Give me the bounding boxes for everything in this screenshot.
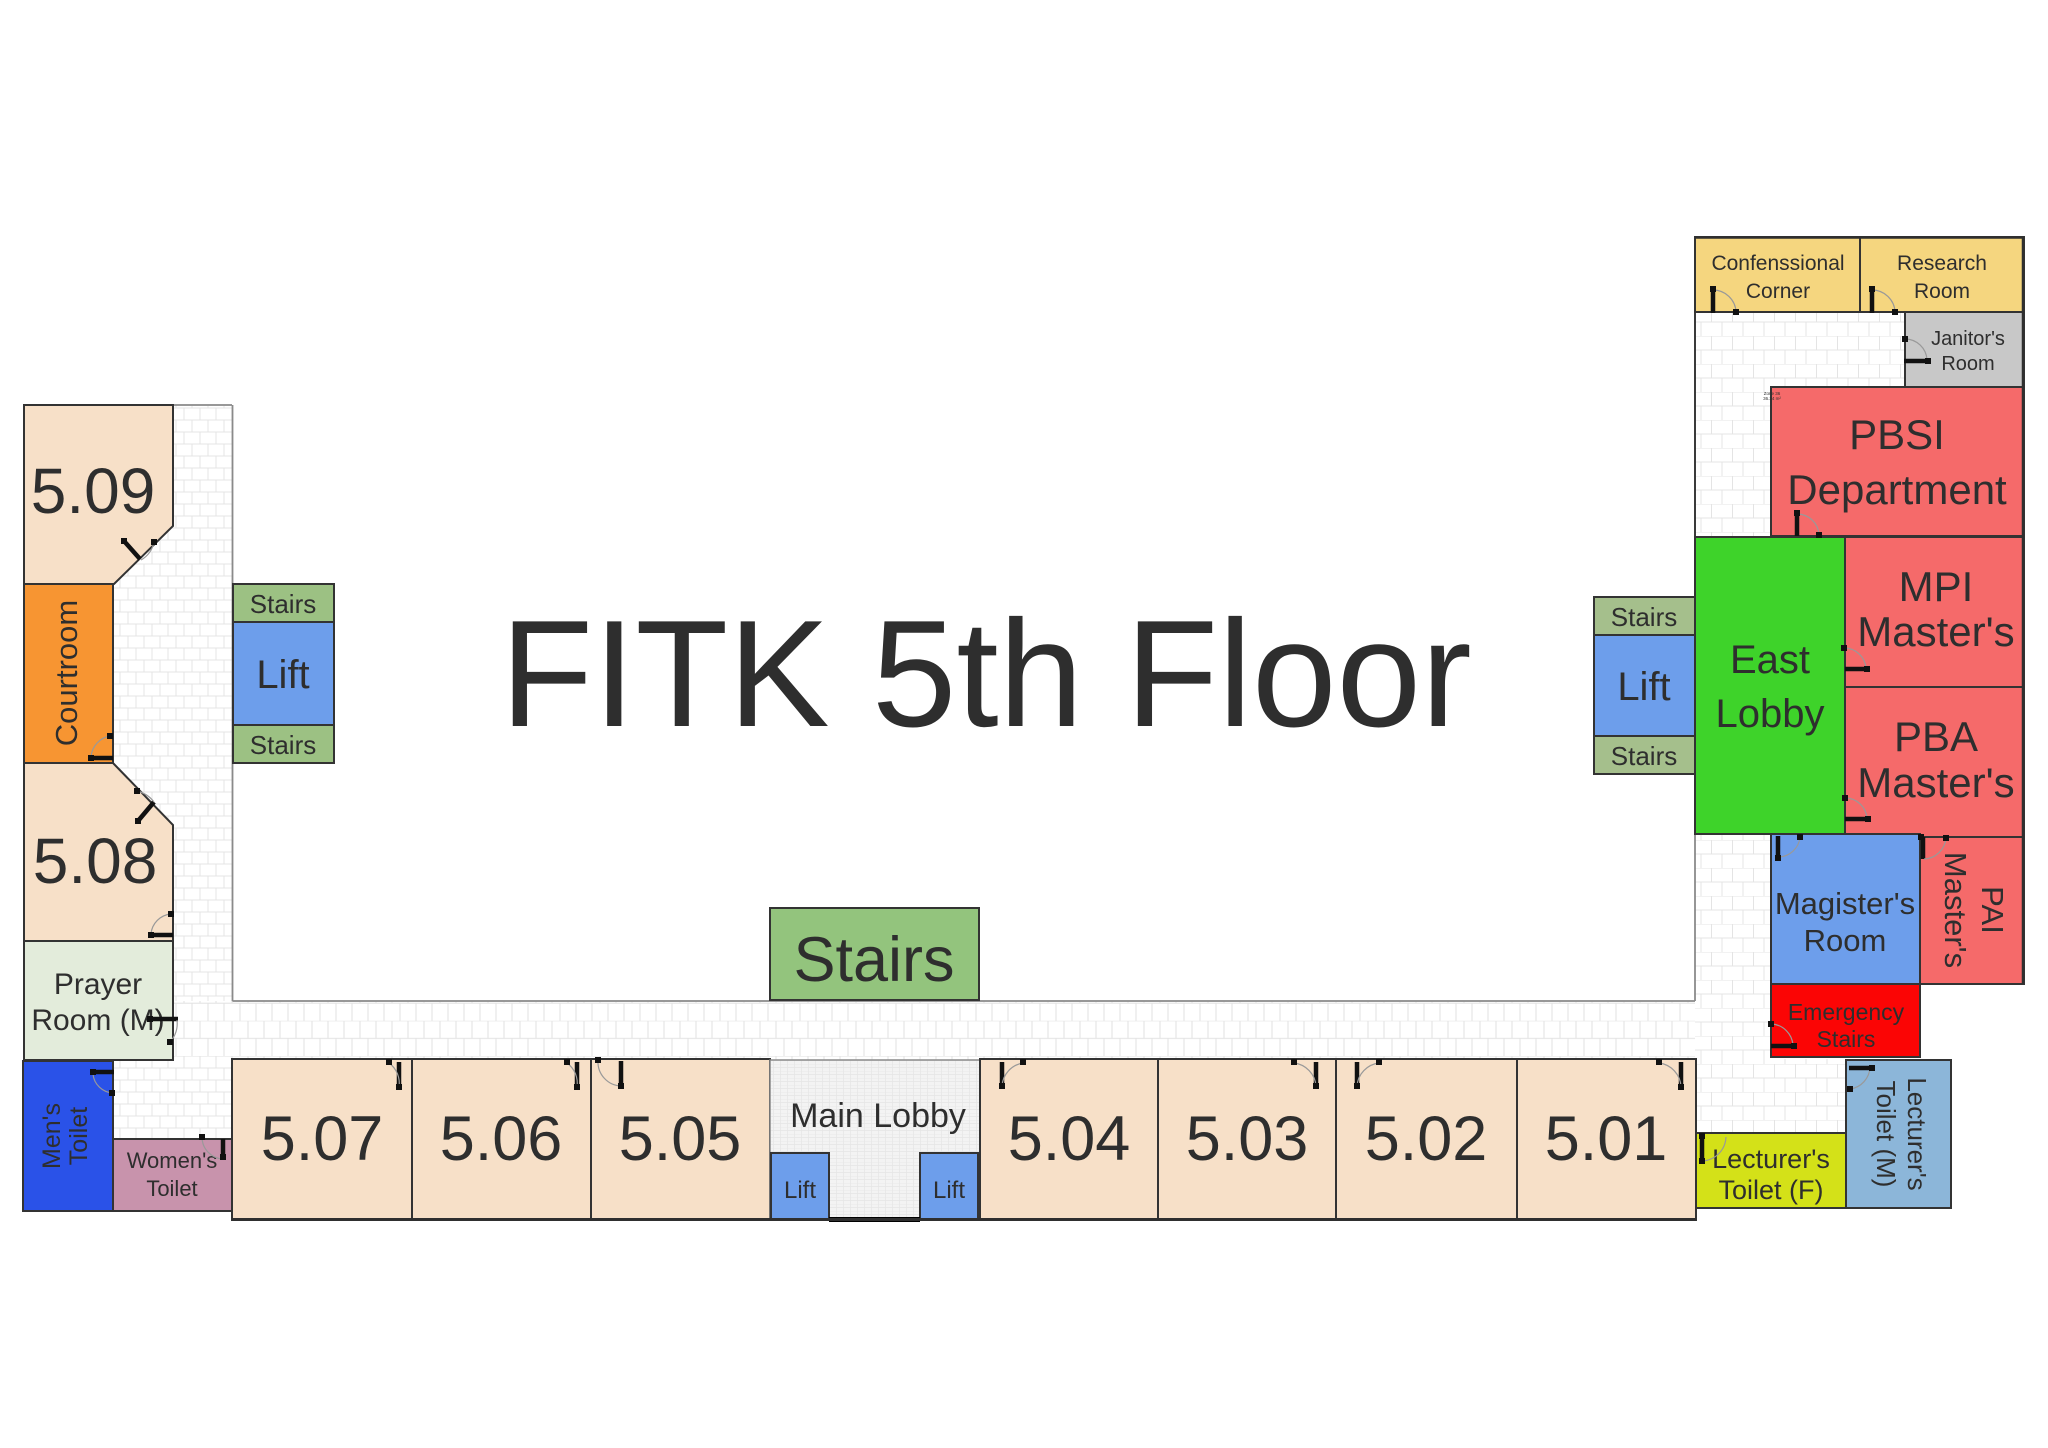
svg-text:Women's: Women's (127, 1148, 218, 1173)
svg-text:Master's: Master's (1938, 852, 1973, 968)
svg-text:Toilet (M): Toilet (M) (1871, 1081, 1901, 1188)
svg-text:Research: Research (1897, 252, 1987, 275)
svg-text:Confenssional: Confenssional (1711, 252, 1844, 275)
svg-text:5.04: 5.04 (1008, 1104, 1131, 1174)
svg-text:Stairs: Stairs (250, 730, 316, 760)
svg-text:Men's: Men's (38, 1103, 66, 1169)
svg-text:Lift: Lift (256, 653, 309, 697)
svg-text:Emergency: Emergency (1788, 999, 1905, 1025)
svg-text:PBSI: PBSI (1849, 411, 1945, 458)
svg-text:Room: Room (1914, 280, 1970, 303)
svg-text:Lift: Lift (933, 1177, 965, 1204)
svg-text:Room: Room (1941, 353, 1994, 375)
svg-text:Room: Room (1804, 923, 1887, 958)
svg-text:Stairs: Stairs (250, 589, 316, 619)
svg-text:5.03: 5.03 (1186, 1104, 1309, 1174)
svg-text:MPI: MPI (1899, 563, 1974, 610)
svg-text:36.24 m²: 36.24 m² (1763, 396, 1781, 401)
svg-text:5.08: 5.08 (33, 825, 158, 897)
svg-text:Courtroom: Courtroom (49, 600, 84, 746)
svg-text:5.09: 5.09 (31, 455, 156, 527)
svg-text:Department: Department (1787, 466, 2007, 513)
svg-text:PBA: PBA (1894, 713, 1978, 760)
svg-text:Toilet (F): Toilet (F) (1718, 1175, 1823, 1205)
svg-text:5.07: 5.07 (261, 1104, 384, 1174)
svg-text:Stairs: Stairs (1611, 741, 1677, 771)
svg-text:Prayer: Prayer (54, 968, 142, 1001)
svg-text:FITK 5th Floor: FITK 5th Floor (500, 589, 1471, 759)
svg-text:5.06: 5.06 (440, 1104, 563, 1174)
svg-text:East: East (1730, 638, 1810, 682)
svg-text:Toilet: Toilet (146, 1176, 197, 1201)
svg-text:Magister's: Magister's (1775, 886, 1915, 921)
svg-text:Lecturer's: Lecturer's (1902, 1077, 1932, 1190)
svg-text:Lift: Lift (784, 1177, 816, 1204)
svg-text:Corner: Corner (1746, 280, 1810, 303)
svg-text:Stairs: Stairs (1611, 602, 1677, 632)
svg-text:PAI: PAI (1975, 886, 2010, 934)
svg-text:Janitor's: Janitor's (1931, 328, 2005, 350)
svg-text:Room (M): Room (M) (31, 1004, 164, 1037)
svg-text:Lift: Lift (1617, 665, 1670, 709)
svg-text:Master's: Master's (1857, 759, 2014, 806)
svg-text:Toilet: Toilet (65, 1107, 93, 1165)
svg-text:Main Lobby: Main Lobby (790, 1097, 966, 1135)
svg-text:Stairs: Stairs (1817, 1026, 1876, 1052)
svg-text:5.02: 5.02 (1365, 1104, 1488, 1174)
svg-text:Stairs: Stairs (793, 925, 954, 995)
svg-text:5.05: 5.05 (619, 1104, 742, 1174)
svg-text:Lobby: Lobby (1716, 692, 1825, 736)
svg-text:5.01: 5.01 (1545, 1104, 1668, 1174)
svg-text:Lecturer's: Lecturer's (1712, 1144, 1830, 1174)
svg-text:Master's: Master's (1857, 608, 2014, 655)
